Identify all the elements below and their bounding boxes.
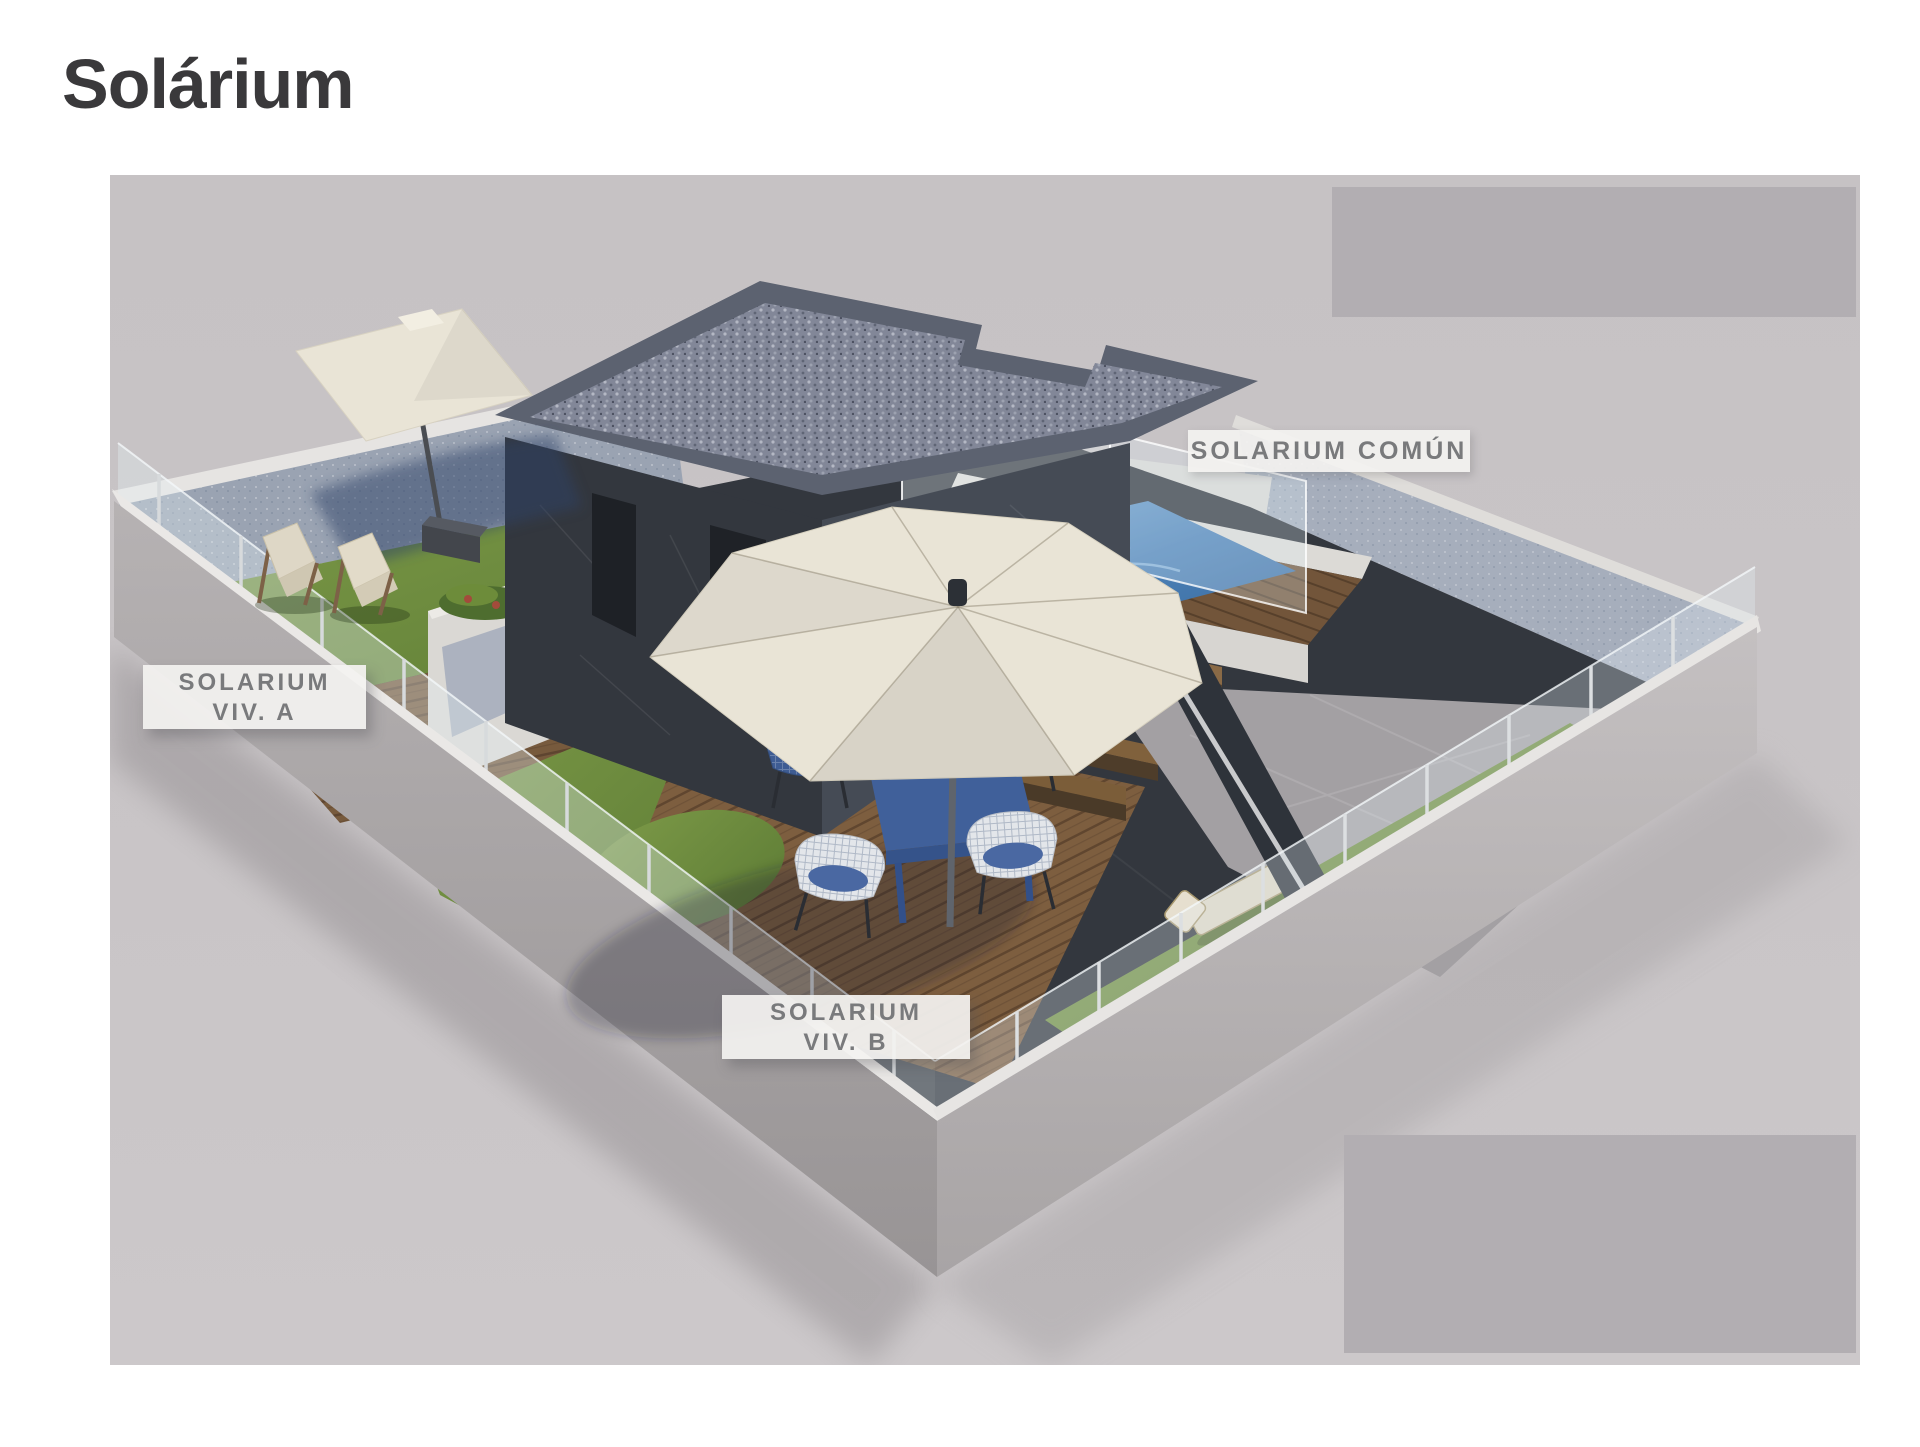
label-viv-b-line2: VIV. B bbox=[722, 1028, 970, 1058]
gray-cover-rectangle-bottom bbox=[1344, 1135, 1856, 1353]
label-viv-b-line1: SOLARIUM bbox=[722, 998, 970, 1028]
label-solarium-comun: SOLARIUM COMÚN bbox=[1188, 430, 1470, 472]
label-viv-a-line1: SOLARIUM bbox=[143, 668, 366, 698]
label-solarium-viv-a: SOLARIUM VIV. A bbox=[143, 665, 366, 729]
solarium-3d-render: SOLARIUM COMÚN SOLARIUM VIV. A SOLARIUM … bbox=[110, 175, 1860, 1365]
umbrella-finial bbox=[948, 579, 967, 606]
page-title: Solárium bbox=[62, 44, 354, 124]
gray-cover-rectangle-top bbox=[1332, 187, 1856, 317]
label-viv-a-line2: VIV. A bbox=[143, 698, 366, 728]
brochure-page: Solárium bbox=[0, 0, 1920, 1447]
label-solarium-viv-b: SOLARIUM VIV. B bbox=[722, 995, 970, 1059]
label-solarium-comun-text: SOLARIUM COMÚN bbox=[1191, 437, 1468, 465]
